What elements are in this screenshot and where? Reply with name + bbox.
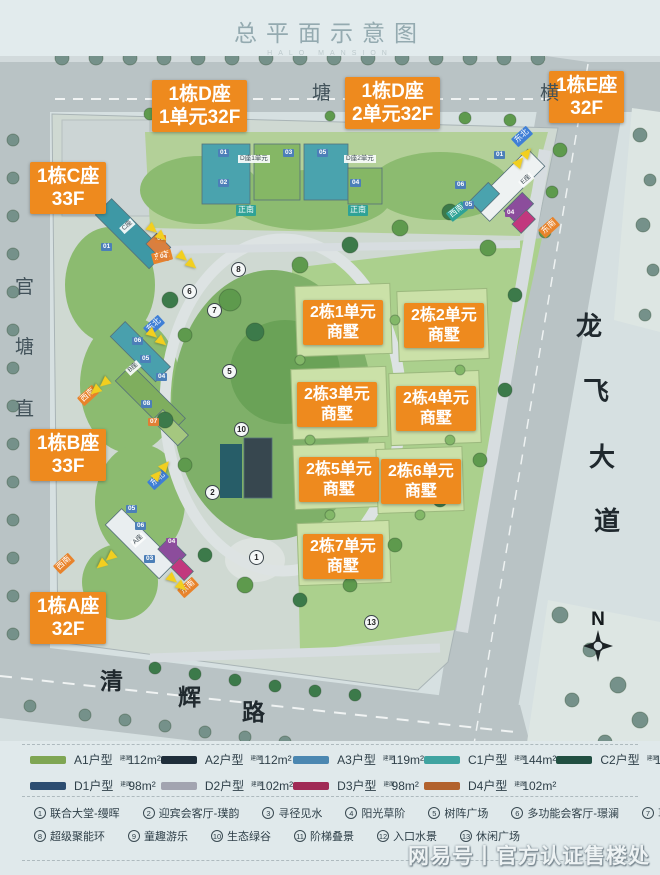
amenity-number: 10 bbox=[211, 830, 223, 842]
unit-color-swatch bbox=[293, 756, 329, 764]
area-prefix: 建面 bbox=[251, 757, 258, 763]
tree-icon bbox=[552, 607, 568, 623]
tree-icon bbox=[504, 114, 516, 126]
unit-type-legend-item: D2户型建面102m² bbox=[161, 777, 293, 794]
tree-icon bbox=[539, 226, 551, 238]
tree-icon bbox=[199, 726, 211, 738]
tree-icon bbox=[445, 435, 455, 445]
tree-icon bbox=[7, 590, 19, 602]
tree-icon bbox=[414, 110, 426, 122]
amenity-legend-item: 4阳光草阶 bbox=[345, 805, 405, 821]
tree-icon bbox=[229, 674, 241, 686]
tree-icon bbox=[7, 324, 19, 336]
unit-area: 建面119m² bbox=[383, 753, 424, 767]
tree-icon bbox=[7, 552, 19, 564]
tree-icon bbox=[546, 186, 558, 198]
unit-color-swatch bbox=[556, 756, 592, 764]
tree-icon bbox=[178, 328, 192, 342]
tree-icon bbox=[508, 288, 522, 302]
tree-icon bbox=[644, 174, 656, 186]
tree-icon bbox=[480, 240, 496, 256]
amenity-label: 阶梯叠景 bbox=[310, 828, 354, 844]
tree-icon bbox=[293, 593, 307, 607]
tree-icon bbox=[295, 355, 305, 365]
amenity-number: 9 bbox=[128, 830, 140, 842]
unit-type-name: D4户型 bbox=[468, 777, 507, 794]
amenity-number: 11 bbox=[294, 830, 306, 842]
unit-type-name: C2户型 bbox=[600, 751, 639, 768]
tree-icon bbox=[219, 289, 241, 311]
tree-icon bbox=[553, 143, 567, 157]
tree-icon bbox=[632, 712, 648, 728]
unit-type-legend-item: C2户型建面144m² bbox=[556, 751, 660, 768]
tree-icon bbox=[647, 264, 659, 276]
area-prefix: 建面 bbox=[120, 757, 127, 763]
amenity-number: 7 bbox=[642, 807, 654, 819]
tree-icon bbox=[24, 700, 36, 712]
unit-type-name: D2户型 bbox=[205, 777, 244, 794]
tree-icon bbox=[269, 680, 281, 692]
amenity-legend-item: 5树阵广场 bbox=[428, 805, 488, 821]
amenity-legend-row-1: 1联合大堂-缦晖2迎宾会客厅-璞韵3寻径见水4阳光草阶5树阵广场6多功能会客厅-… bbox=[34, 805, 660, 821]
amenity-number: 12 bbox=[377, 830, 389, 842]
compass-north-label: N bbox=[578, 610, 618, 629]
tree-icon bbox=[343, 578, 357, 592]
amenity-label: 联合大堂-缦晖 bbox=[50, 805, 120, 821]
tree-icon bbox=[119, 714, 131, 726]
tree-icon bbox=[246, 323, 264, 341]
area-prefix: 建面 bbox=[514, 783, 521, 789]
amenity-label: 超级聚能环 bbox=[50, 828, 105, 844]
amenity-label: 阳光草阶 bbox=[361, 805, 405, 821]
unit-type-legend-item: C1户型建面144m² bbox=[424, 751, 556, 768]
page-title: 总平面示意图 bbox=[0, 14, 660, 48]
unit-area: 建面102m² bbox=[514, 779, 556, 793]
amenity-label: 迎宾会客厅-璞韵 bbox=[159, 805, 240, 821]
area-prefix: 建面 bbox=[383, 757, 390, 763]
amenity-number: 6 bbox=[511, 807, 523, 819]
unit-area: 建面98m² bbox=[120, 779, 155, 793]
tree-icon bbox=[292, 257, 308, 273]
tree-icon bbox=[636, 218, 650, 232]
amenity-number: 8 bbox=[34, 830, 46, 842]
tree-icon bbox=[7, 362, 19, 374]
area-prefix: 建面 bbox=[120, 783, 127, 789]
tree-icon bbox=[459, 112, 471, 124]
unit-area: 建面144m² bbox=[647, 753, 660, 767]
tree-icon bbox=[159, 720, 171, 732]
amenity-label: 树阵广场 bbox=[444, 805, 488, 821]
compass: N bbox=[578, 610, 618, 668]
tree-icon bbox=[325, 111, 335, 121]
amenity-legend-item: 8超级聚能环 bbox=[34, 828, 105, 844]
tree-icon bbox=[415, 510, 425, 520]
amenity-legend-item: 1联合大堂-缦晖 bbox=[34, 805, 120, 821]
compass-rose-icon bbox=[581, 629, 615, 663]
tree-icon bbox=[7, 134, 19, 146]
amenity-legend-item: 2迎宾会客厅-璞韵 bbox=[143, 805, 240, 821]
tree-icon bbox=[463, 323, 477, 337]
tree-icon bbox=[342, 237, 358, 253]
amenity-label: 寻径见水 bbox=[278, 805, 322, 821]
unit-area: 建面112m² bbox=[120, 753, 161, 767]
tree-icon bbox=[144, 108, 156, 120]
amenity-legend-item: 7草坪剧场 bbox=[642, 805, 660, 821]
unit-type-legend: A1户型建面112m²A2户型建面112m²A3户型建面119m²C1户型建面1… bbox=[30, 751, 636, 794]
unit-type-legend-item: A1户型建面112m² bbox=[30, 751, 161, 768]
tree-icon bbox=[305, 435, 315, 445]
amenity-legend-item: 11阶梯叠景 bbox=[294, 828, 354, 844]
tree-icon bbox=[442, 204, 458, 220]
unit-type-legend-item: D1户型建面98m² bbox=[30, 777, 161, 794]
amenity-legend-item: 3寻径见水 bbox=[262, 805, 322, 821]
unit-type-name: A1户型 bbox=[74, 751, 113, 768]
unit-area: 建面98m² bbox=[384, 779, 419, 793]
tree-icon bbox=[79, 709, 91, 721]
area-prefix: 建面 bbox=[514, 757, 521, 763]
tree-icon bbox=[7, 286, 19, 298]
tree-icon bbox=[162, 292, 178, 308]
unit-type-legend-item: D4户型建面102m² bbox=[424, 777, 556, 794]
area-prefix: 建面 bbox=[647, 757, 654, 763]
tree-icon bbox=[178, 458, 192, 472]
tree-icon bbox=[309, 685, 321, 697]
watermark: 网易号丨官方认证售楼处 bbox=[408, 840, 650, 870]
amenity-number: 1 bbox=[34, 807, 46, 819]
header: 总平面示意图 HALO MANSION bbox=[0, 0, 660, 56]
amenity-legend-item: 9童趣游乐 bbox=[128, 828, 188, 844]
tree-icon bbox=[7, 438, 19, 450]
amenity-label: 多功能会客厅-璟澜 bbox=[527, 805, 619, 821]
amenity-number: 5 bbox=[428, 807, 440, 819]
tree-icon bbox=[7, 248, 19, 260]
tree-icon bbox=[7, 514, 19, 526]
area-prefix: 建面 bbox=[251, 783, 258, 789]
page-subtitle: HALO MANSION bbox=[0, 50, 660, 57]
unit-area: 建面112m² bbox=[251, 753, 292, 767]
tree-icon bbox=[390, 315, 400, 325]
water-layer bbox=[220, 444, 242, 498]
amenity-legend-item: 10生态绿谷 bbox=[211, 828, 271, 844]
tree-icon bbox=[565, 693, 579, 707]
unit-type-name: A3户型 bbox=[337, 751, 376, 768]
tree-icon bbox=[189, 668, 201, 680]
divider bbox=[22, 796, 638, 797]
amenity-number: 2 bbox=[143, 807, 155, 819]
unit-type-name: D3户型 bbox=[337, 777, 376, 794]
amenity-number: 4 bbox=[345, 807, 357, 819]
tree-icon bbox=[325, 510, 335, 520]
tree-icon bbox=[237, 577, 253, 593]
unit-color-swatch bbox=[293, 782, 329, 790]
unit-area: 建面102m² bbox=[251, 779, 293, 793]
unit-color-swatch bbox=[161, 756, 197, 764]
tree-icon bbox=[473, 453, 487, 467]
tree-icon bbox=[392, 220, 408, 236]
amenity-label: 童趣游乐 bbox=[144, 828, 188, 844]
unit-color-swatch bbox=[161, 782, 197, 790]
tree-icon bbox=[633, 128, 647, 142]
tree-icon bbox=[433, 493, 447, 507]
tree-icon bbox=[189, 110, 201, 122]
tree-icon bbox=[198, 548, 212, 562]
amenity-number: 3 bbox=[262, 807, 274, 819]
tree-icon bbox=[7, 476, 19, 488]
tree-icon bbox=[498, 383, 512, 397]
tree-icon bbox=[235, 111, 245, 121]
tree-icon bbox=[388, 538, 402, 552]
tree-icon bbox=[157, 412, 173, 428]
unit-color-swatch bbox=[424, 782, 460, 790]
unit-color-swatch bbox=[424, 756, 460, 764]
unit-type-name: C1户型 bbox=[468, 751, 507, 768]
unit-type-name: D1户型 bbox=[74, 777, 113, 794]
tree-icon bbox=[7, 210, 19, 222]
unit-color-swatch bbox=[30, 782, 66, 790]
unit-type-name: A2户型 bbox=[205, 751, 244, 768]
amenity-legend-item: 6多功能会客厅-璟澜 bbox=[511, 805, 619, 821]
unit-type-legend-item: A3户型建面119m² bbox=[293, 751, 424, 768]
tree-icon bbox=[149, 662, 161, 674]
tree-icon bbox=[349, 689, 361, 701]
amenity-label: 生态绿谷 bbox=[227, 828, 271, 844]
unit-type-legend-item: D3户型建面98m² bbox=[293, 777, 424, 794]
tree-icon bbox=[7, 172, 19, 184]
tree-icon bbox=[7, 400, 19, 412]
area-prefix: 建面 bbox=[384, 783, 391, 789]
tree-icon bbox=[333, 558, 347, 572]
unit-area: 建面144m² bbox=[514, 753, 556, 767]
site-plan-page: 总平面示意图 HALO MANSION bbox=[0, 0, 660, 875]
divider bbox=[22, 744, 638, 745]
tree-icon bbox=[639, 309, 651, 321]
unit-color-swatch bbox=[30, 756, 66, 764]
unit-type-legend-item: A2户型建面112m² bbox=[161, 751, 293, 768]
tree-icon bbox=[610, 677, 626, 693]
tree-icon bbox=[455, 365, 465, 375]
tree-icon bbox=[7, 628, 19, 640]
